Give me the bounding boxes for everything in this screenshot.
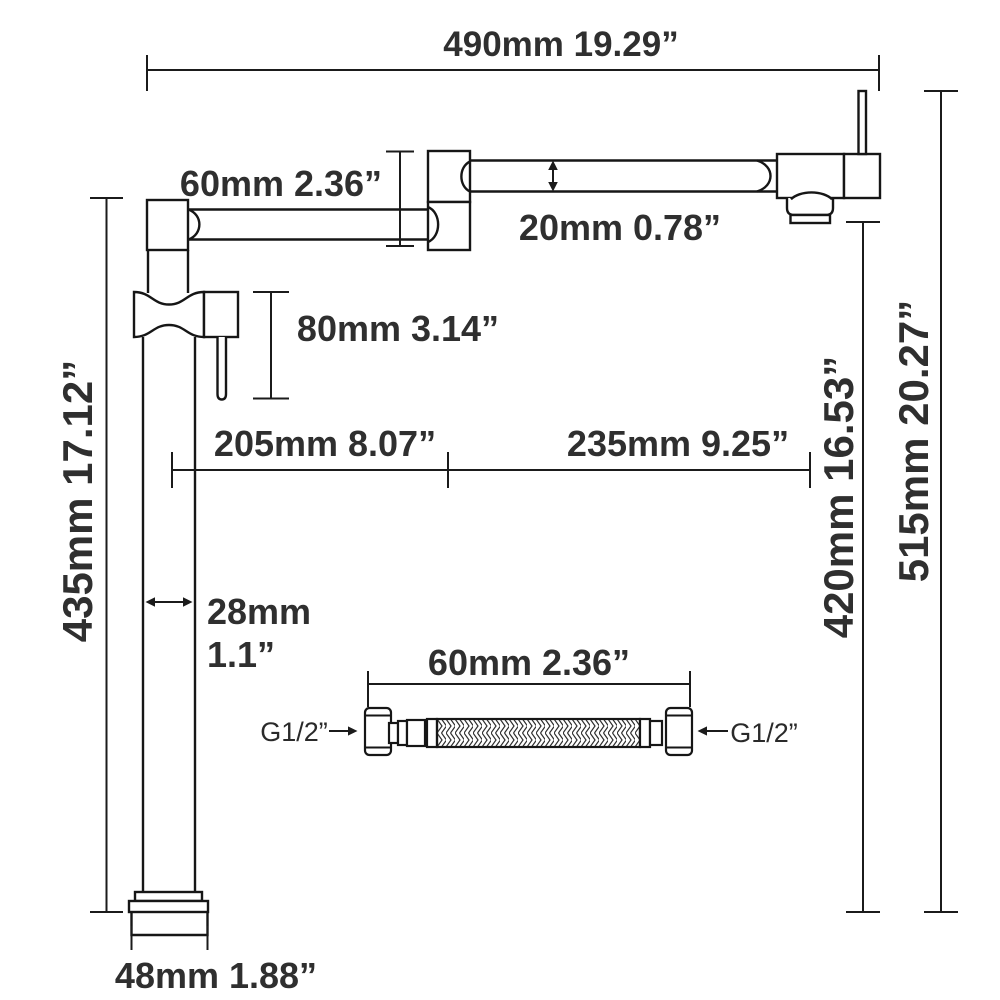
base-step-2 xyxy=(129,901,208,912)
faucet-drawing xyxy=(129,91,880,935)
dim-overall-width-label: 490mm 19.29” xyxy=(443,25,678,64)
thread-callout-left: G1/2” xyxy=(260,717,357,747)
base-flange xyxy=(132,912,208,935)
dim-base-width-label: 48mm 1.88” xyxy=(115,955,317,996)
dim-joint-height: 60mm 2.36” xyxy=(180,152,414,247)
dim-arm-thickness: 20mm 0.78” xyxy=(519,161,721,249)
dim-hose-length: 60mm 2.36” xyxy=(368,642,690,707)
folding-joint-lower xyxy=(428,202,470,250)
arrow-right-icon xyxy=(348,726,358,735)
hose-collar-c xyxy=(407,720,425,746)
spout-head-block-end xyxy=(844,154,880,198)
upper-arm-joint-pinch-right xyxy=(757,161,771,192)
hose-collar-a xyxy=(389,723,398,743)
handle-lever xyxy=(218,337,227,400)
dim-total-height: 515mm 20.27” xyxy=(890,91,958,912)
hose-ferrule-left xyxy=(427,719,437,747)
dim-inner-reach-label: 205mm 8.07” xyxy=(214,423,436,464)
hose-ferrule-right xyxy=(640,719,650,747)
dim-handle-drop-label: 80mm 3.14” xyxy=(297,308,499,349)
dim-base-width: 48mm 1.88” xyxy=(115,926,317,996)
thread-right-label: G1/2” xyxy=(730,718,798,748)
faucet-dimension-diagram: 490mm 19.29” 60mm 2.36” 20mm 0.78” 80mm … xyxy=(0,0,1000,1000)
lower-arm xyxy=(188,210,428,240)
lower-arm-joint-pinch-left xyxy=(189,210,200,240)
arrow-left-icon xyxy=(698,726,708,735)
dim-hose-length-label: 60mm 2.36” xyxy=(428,642,630,683)
dim-outer-reach-label: 235mm 9.25” xyxy=(567,423,789,464)
dim-spout-clearance: 420mm 16.53” xyxy=(815,222,880,912)
spout-collar xyxy=(787,198,833,215)
hose-collar-b xyxy=(398,721,407,745)
dim-handle-drop: 80mm 3.14” xyxy=(253,292,499,399)
dim-spout-clearance-label: 420mm 16.53” xyxy=(815,356,862,639)
supply-hose-drawing xyxy=(365,708,692,755)
upper-arm xyxy=(470,161,777,192)
thread-callout-right: G1/2” xyxy=(698,718,798,748)
hose-collar-d xyxy=(650,721,662,745)
diagram-svg: 490mm 19.29” 60mm 2.36” 20mm 0.78” 80mm … xyxy=(0,0,1000,1000)
spout-nozzle xyxy=(791,215,831,223)
spout-handle-stick xyxy=(859,91,867,154)
valve-body-right xyxy=(204,292,238,337)
folding-joint-upper xyxy=(428,151,470,202)
dim-pipe-diameter-mm-label: 28mm xyxy=(207,591,311,632)
hose-braided-section xyxy=(437,719,640,747)
dim-joint-height-label: 60mm 2.36” xyxy=(180,163,382,204)
dim-arm-thickness-label: 20mm 0.78” xyxy=(519,207,721,248)
dim-overall-width: 490mm 19.29” xyxy=(147,25,879,91)
elbow-block xyxy=(147,200,188,250)
dim-pipe-diameter: 28mm 1.1” xyxy=(146,591,312,675)
dim-column-height-label: 435mm 17.12” xyxy=(54,360,101,643)
elbow-pipe xyxy=(148,250,188,293)
base-step-1 xyxy=(135,892,202,901)
dim-reach: 205mm 8.07” 235mm 9.25” xyxy=(172,423,810,488)
dim-total-height-label: 515mm 20.27” xyxy=(890,300,937,583)
dim-pipe-diameter-in-label: 1.1” xyxy=(207,634,275,675)
faucet-column xyxy=(143,337,195,892)
thread-left-label: G1/2” xyxy=(260,717,328,747)
valve-body xyxy=(134,292,204,337)
dim-column-height: 435mm 17.12” xyxy=(54,198,123,912)
